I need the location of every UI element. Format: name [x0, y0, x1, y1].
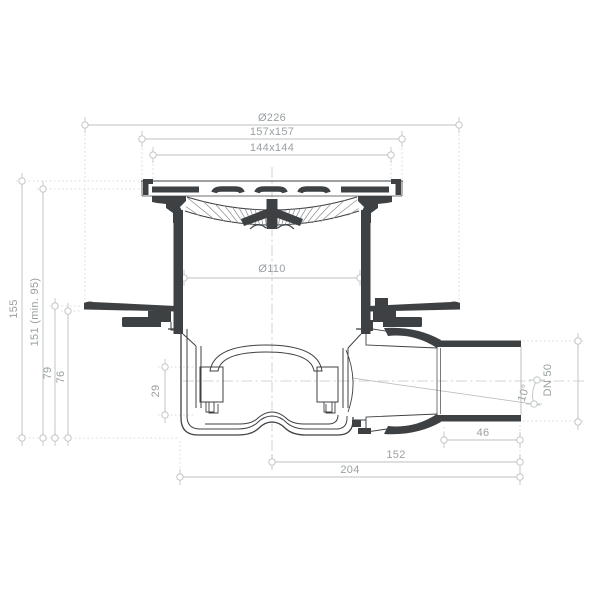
grate-slot-bar	[214, 189, 242, 193]
grate-left-hook	[143, 179, 153, 195]
pipe-wall-bottom	[437, 415, 521, 422]
elbow-top	[384, 328, 441, 348]
dim-label-angle10: 10°	[516, 383, 533, 403]
grate-slot-bar	[300, 189, 328, 193]
grate-bar	[152, 187, 199, 193]
seal-wall-left	[200, 367, 223, 402]
riser-wall-right	[361, 210, 371, 334]
dimension-dia110: Ø110	[181, 263, 363, 286]
seal-wall-right	[317, 367, 338, 402]
trap-body	[168, 329, 371, 435]
dimension-155: 155	[8, 173, 25, 446]
right-flange	[361, 298, 460, 331]
dimension-46: 46	[441, 427, 523, 448]
elbow-bottom	[384, 414, 441, 434]
grate-bar	[341, 187, 389, 193]
dimension-76: 76	[55, 303, 71, 446]
dim-label-46: 46	[477, 427, 490, 439]
dimension-dn50: DN 50	[542, 333, 581, 430]
riser-wall-left	[174, 210, 184, 334]
dim-label-dia226: Ø226	[258, 112, 286, 124]
pipe-wall-top	[437, 341, 521, 348]
dim-label-155: 155	[8, 299, 20, 318]
trap-inner-shell	[187, 329, 347, 429]
left-flange	[84, 301, 181, 330]
dim-label-152: 152	[386, 449, 405, 461]
dim-label-79: 79	[42, 367, 54, 380]
dim-label-157x157: 157x157	[250, 126, 294, 138]
dim-label-76: 76	[55, 371, 67, 384]
dim-label-204: 204	[340, 464, 359, 476]
dim-label-29: 29	[150, 385, 162, 398]
dimension-152: 152	[269, 449, 523, 470]
grate-slot-bar	[257, 189, 285, 193]
dimension-151: 151 (min. 95)	[29, 181, 46, 446]
flange-plate-left	[84, 301, 176, 311]
dimension-144x144: 144x144	[150, 142, 394, 163]
dome-shell	[210, 345, 322, 371]
dimensions: Ø226 157x157 144x144 Ø110 155	[8, 112, 581, 485]
dim-label-151: 151 (min. 95)	[29, 278, 41, 347]
dim-label-144x144: 144x144	[250, 142, 294, 154]
grate-right-hook	[391, 179, 401, 195]
dim-label-dia110: Ø110	[258, 263, 285, 275]
dimension-204: 204	[177, 464, 523, 485]
dimension-29: 29	[150, 359, 168, 423]
technical-drawing: Ø226 157x157 144x144 Ø110 155	[0, 0, 600, 600]
